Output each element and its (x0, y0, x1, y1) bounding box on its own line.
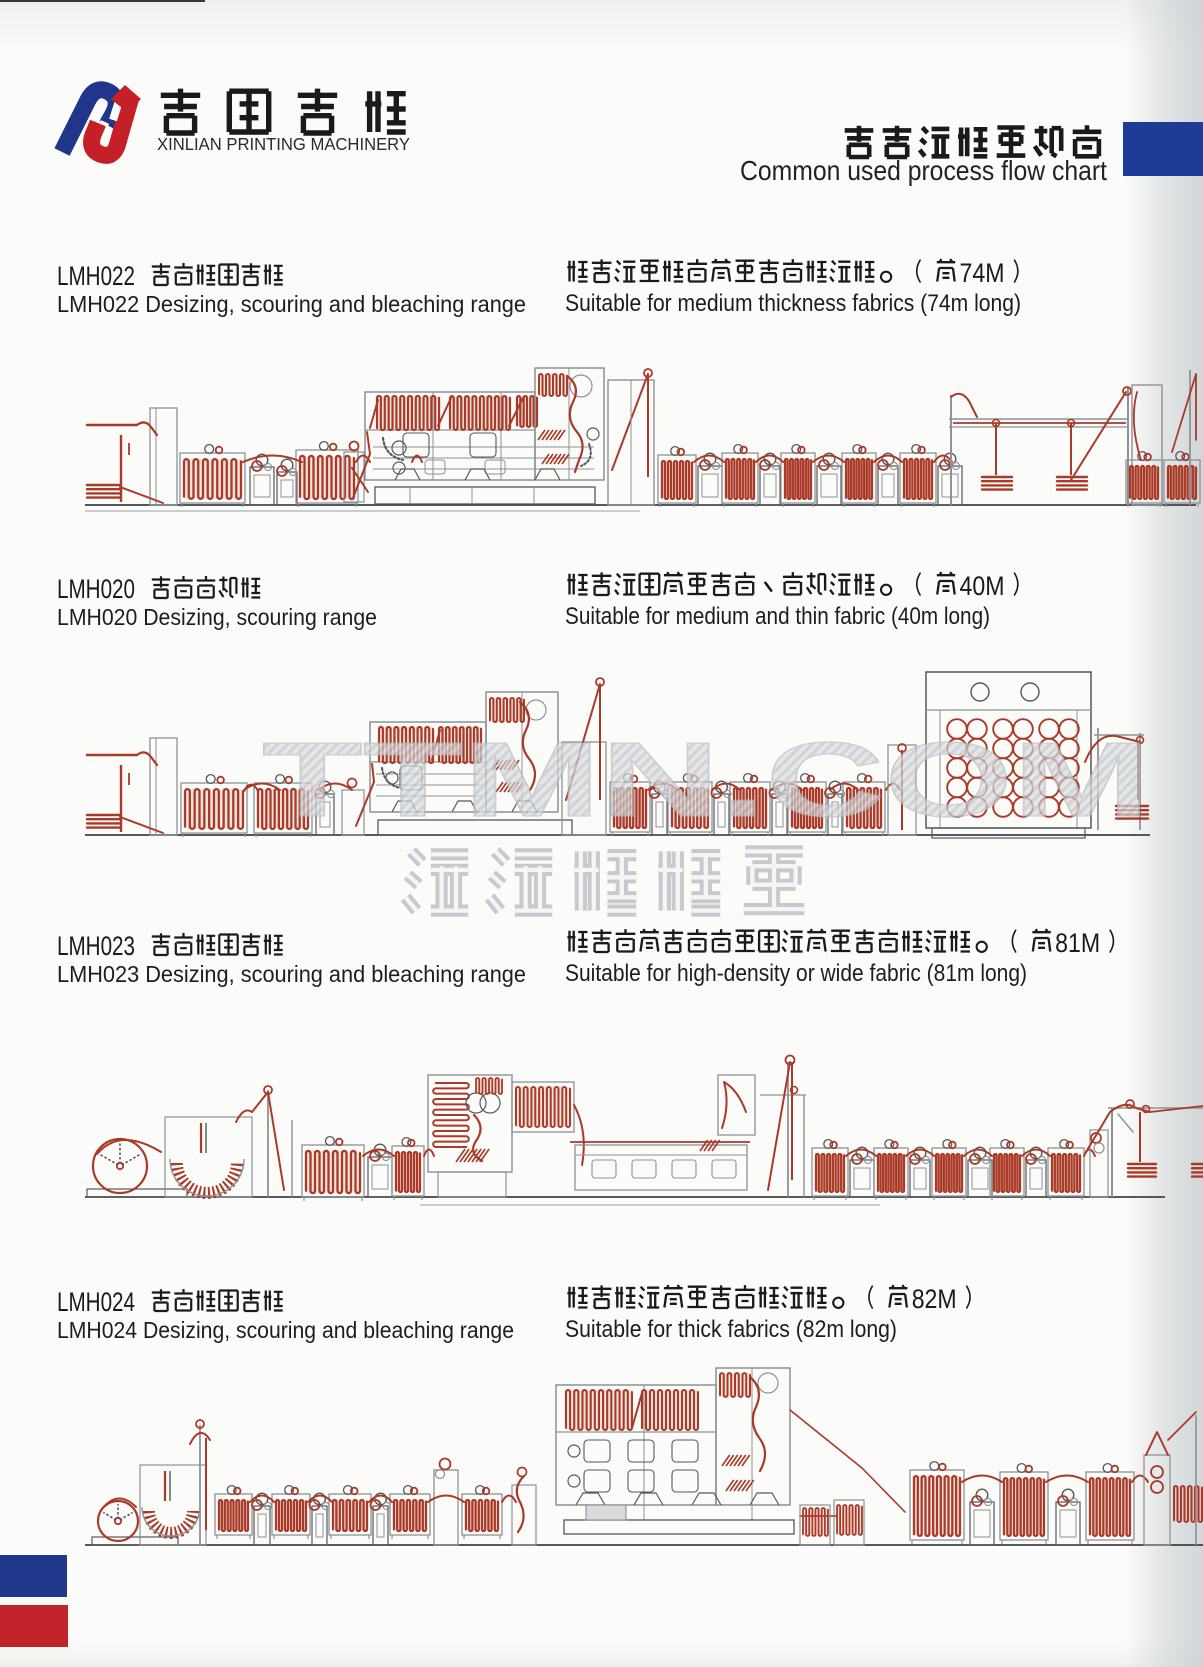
svg-text:LMH022 Desizing, scouring and: LMH022 Desizing, scouring and bleaching … (57, 291, 526, 317)
svg-text:Suitable for thick fabrics (82: Suitable for thick fabrics (82m long) (565, 1316, 897, 1343)
svg-text:40M: 40M (960, 571, 1005, 601)
svg-text:Suitable for medium thickness: Suitable for medium thickness fabrics (7… (565, 290, 1021, 317)
svg-text:Suitable for high-density or w: Suitable for high-density or wide fabric… (565, 960, 1027, 987)
svg-text:LMH024 Desizing, scouring and: LMH024 Desizing, scouring and bleaching … (57, 1317, 514, 1343)
svg-text:81M: 81M (1055, 928, 1100, 958)
svg-text:LMH020 Desizing, scouring rang: LMH020 Desizing, scouring range (57, 604, 377, 630)
svg-text:82M: 82M (912, 1284, 957, 1314)
svg-text:74M: 74M (960, 258, 1005, 288)
svg-text:LMH020: LMH020 (57, 574, 135, 604)
svg-text:XINLIAN PRINTING MACHINERY: XINLIAN PRINTING MACHINERY (157, 134, 410, 154)
svg-text:LMH023 Desizing, scouring and: LMH023 Desizing, scouring and bleaching … (57, 961, 526, 987)
svg-text:Suitable for medium and thin f: Suitable for medium and thin fabric (40m… (565, 603, 990, 630)
svg-text:Common used process flow chart: Common used process flow chart (740, 155, 1107, 186)
svg-text:LMH023: LMH023 (57, 931, 135, 961)
svg-text:LMH022: LMH022 (57, 261, 135, 291)
svg-text:LMH024: LMH024 (57, 1287, 135, 1317)
svg-text:TTMN.COM: TTMN.COM (262, 721, 1150, 839)
